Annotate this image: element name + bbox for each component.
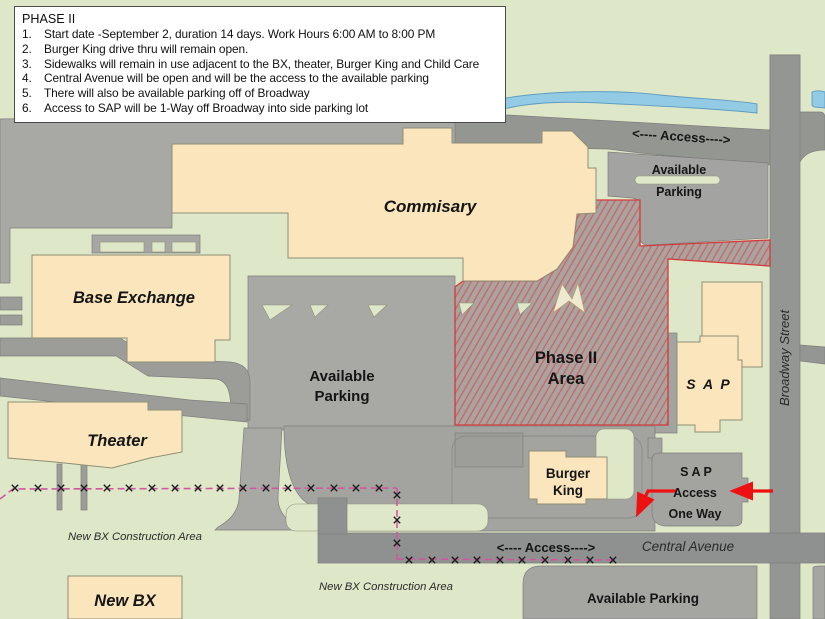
- sap-access-label-line3: One Way: [668, 507, 721, 521]
- parking-bottom-right: [813, 566, 825, 619]
- construction-area-label-left: New BX Construction Area: [68, 531, 202, 543]
- sap-building-label: S A P: [686, 376, 732, 392]
- note-item: 1. Start date -September 2, duration 14 …: [22, 27, 498, 42]
- theater-sidewalk-2: [81, 464, 87, 510]
- sidewalk-island: [100, 242, 144, 252]
- note-number: 5.: [22, 86, 44, 101]
- green-pocket: [286, 504, 488, 531]
- note-number: 2.: [22, 42, 44, 57]
- note-text: Burger King drive thru will remain open.: [44, 42, 248, 57]
- commissary-label: Commisary: [384, 197, 478, 216]
- note-number: 1.: [22, 27, 44, 42]
- sap-access-label-line1: S A P: [680, 465, 712, 479]
- note-number: 4.: [22, 71, 44, 86]
- note-text: Access to SAP will be 1-Way off Broadway…: [44, 101, 368, 116]
- theater-label: Theater: [87, 432, 148, 450]
- base-exchange-label: Base Exchange: [73, 289, 195, 307]
- note-text: Start date -September 2, duration 14 day…: [44, 27, 435, 42]
- sidewalk-west-2: [0, 315, 22, 325]
- burger-king-label-line2: King: [553, 483, 583, 498]
- phase-notes-box: PHASE II 1. Start date -September 2, dur…: [14, 6, 506, 123]
- phase2-label-line1: Phase II: [535, 349, 597, 367]
- note-text: Sidewalks will remain in use adjacent to…: [44, 57, 479, 72]
- sap-access-label-line2: Access: [673, 486, 717, 500]
- sidewalk-island: [152, 242, 165, 252]
- parking-middle: [248, 276, 455, 430]
- note-number: 3.: [22, 57, 44, 72]
- note-item: 2. Burger King drive thru will remain op…: [22, 42, 498, 57]
- note-item: 5. There will also be available parking …: [22, 86, 498, 101]
- green-island: [635, 176, 720, 184]
- burger-king-lot-step: [455, 433, 523, 467]
- available-parking-center-line1: Available: [309, 368, 374, 385]
- phase2-label-line2: Area: [548, 370, 586, 388]
- site-map: Commisary Base Exchange Theater New BX S…: [0, 0, 825, 619]
- phase-title: PHASE II: [22, 12, 498, 27]
- note-text: There will also be available parking off…: [44, 86, 310, 101]
- broadway-street-label: Broadway Street: [777, 309, 792, 406]
- construction-area-label-right: New BX Construction Area: [319, 581, 453, 593]
- note-item: 4. Central Avenue will be open and will …: [22, 71, 498, 86]
- available-parking-center-line2: Parking: [314, 388, 369, 405]
- access-label-bottom: <---- Access---->: [497, 540, 596, 555]
- available-parking-bottom-label: Available Parking: [587, 591, 699, 606]
- sidewalk-west-1: [0, 297, 22, 310]
- available-parking-ne-line1: Available: [652, 163, 706, 177]
- sidewalk-island: [172, 242, 196, 252]
- stream-east: [812, 91, 825, 108]
- note-item: 3. Sidewalks will remain in use adjacent…: [22, 57, 498, 72]
- available-parking-ne-line2: Parking: [656, 185, 702, 199]
- new-bx-label: New BX: [94, 592, 156, 610]
- note-number: 6.: [22, 101, 44, 116]
- burger-king-label-line1: Burger: [546, 466, 591, 481]
- central-avenue-label: Central Avenue: [642, 539, 734, 554]
- central-avenue-stub: [318, 498, 347, 534]
- note-item: 6. Access to SAP will be 1-Way off Broad…: [22, 101, 498, 116]
- note-text: Central Avenue will be open and will be …: [44, 71, 429, 86]
- stub-road-east: [800, 345, 825, 364]
